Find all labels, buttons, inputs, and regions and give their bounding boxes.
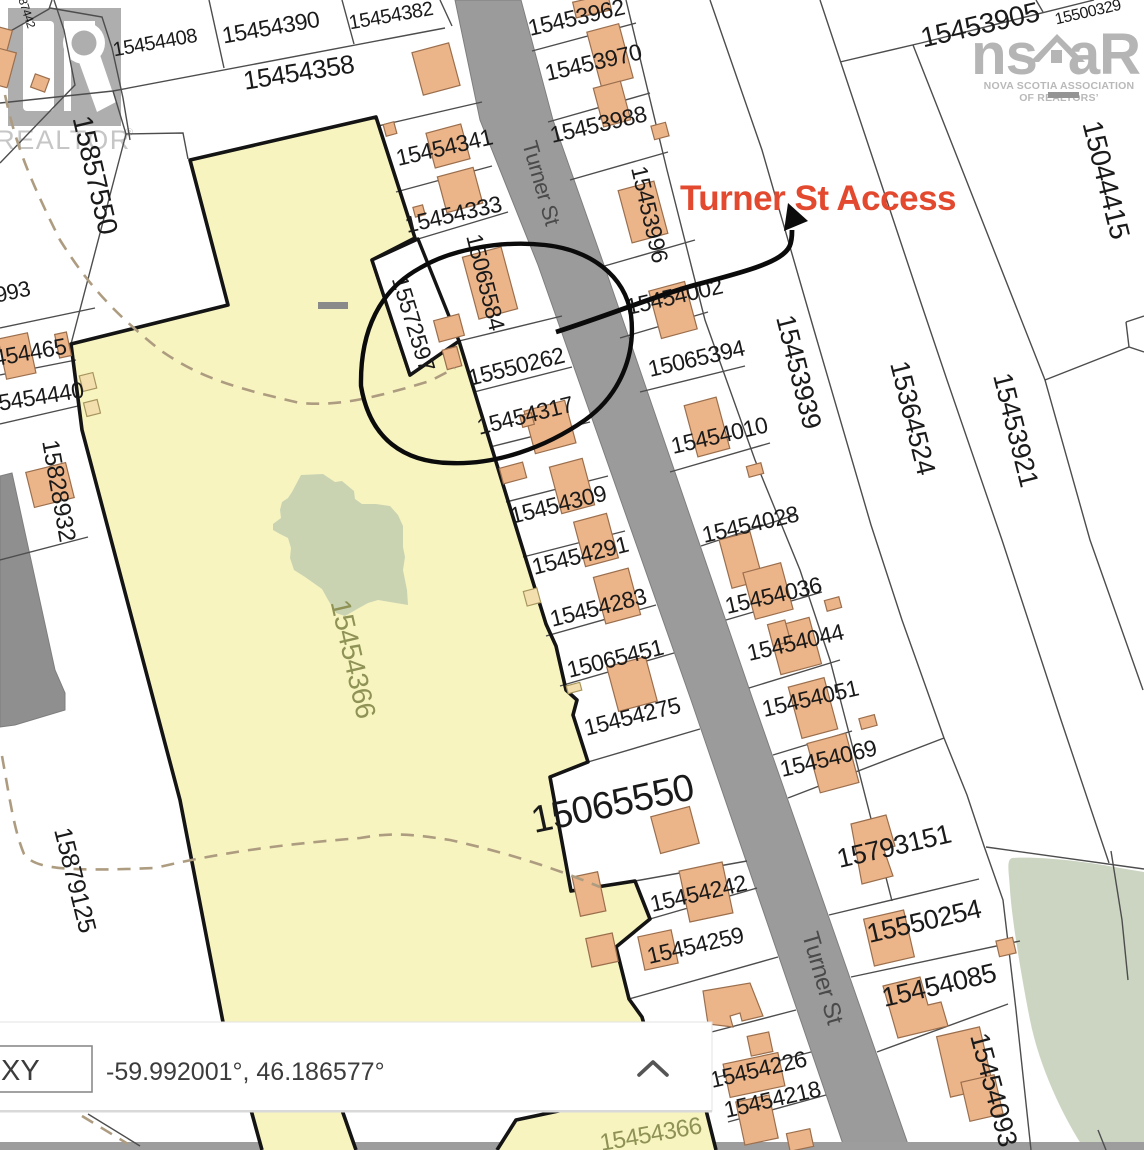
svg-text:aR: aR: [1068, 22, 1140, 87]
svg-text:NOVA SCOTIA ASSOCIATION: NOVA SCOTIA ASSOCIATION: [984, 80, 1135, 92]
svg-text:XY: XY: [1, 1055, 40, 1087]
svg-text:-59.992001°, 46.186577°: -59.992001°, 46.186577°: [106, 1058, 385, 1086]
svg-text:REALTOR: REALTOR: [0, 125, 131, 155]
svg-text:Turner St Access: Turner St Access: [680, 179, 956, 218]
